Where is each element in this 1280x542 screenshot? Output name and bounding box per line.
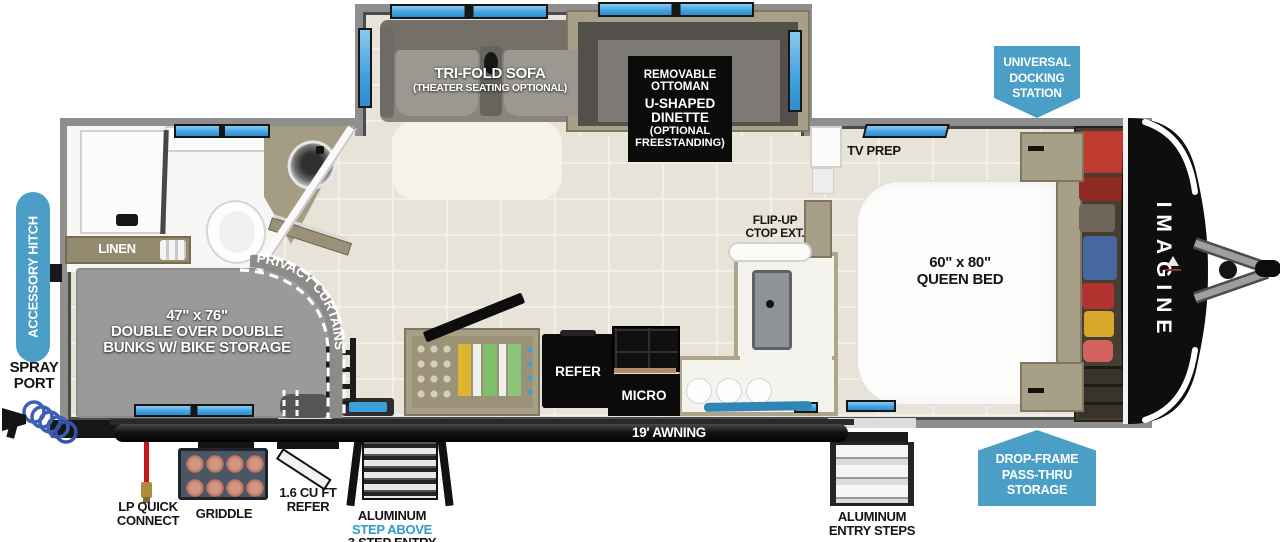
step-above-label: ALUMINUM STEP ABOVE 3 STEP ENTRY <box>338 509 446 542</box>
living-area-rug <box>392 120 562 200</box>
step-above-line3: 3 STEP ENTRY <box>338 536 446 542</box>
tongue-jack <box>1219 261 1237 279</box>
drop-frame-storage-badge: DROP-FRAME PASS-THRU STORAGE <box>978 430 1096 506</box>
linen-label: LINEN <box>72 242 162 256</box>
spray-nozzle-handle <box>6 423 17 439</box>
shower-fixture <box>116 214 138 226</box>
accessory-hitch-badge: ACCESSORY HITCH <box>16 192 50 362</box>
cabinet-top-handle <box>1028 146 1044 151</box>
awning-label: 19' AWNING <box>599 426 739 440</box>
accessory-hitch-label: ACCESSORY HITCH <box>26 216 41 338</box>
step-above-line1: ALUMINUM <box>338 509 446 523</box>
compact-refer-line1: 1.6 CU FT <box>268 486 348 500</box>
dinette-line3: (OPTIONAL FREESTANDING) <box>632 125 728 149</box>
bathroom-window <box>174 124 270 138</box>
linen-towels <box>160 240 186 260</box>
bunks-line2: DOUBLE OVER DOUBLE <box>92 324 302 340</box>
refer-label: REFER <box>555 364 601 379</box>
bedroom-cabinet-bottom <box>1020 362 1084 412</box>
compact-refer-line2: REFER <box>268 500 348 514</box>
pantry-speaker-dots <box>525 344 535 400</box>
bed-label: QUEEN BED <box>880 271 1040 288</box>
counter-plate-3 <box>746 378 772 404</box>
counter-plate-2 <box>716 378 742 404</box>
microwave: MICRO <box>608 374 680 416</box>
bed-size: 60" x 80" <box>880 254 1040 271</box>
bunk-ladder <box>326 338 356 406</box>
toilet-seat <box>219 211 255 253</box>
griddle-patties <box>184 452 264 498</box>
bath-faucet <box>316 146 324 154</box>
griddle-label: GRIDDLE <box>188 507 260 521</box>
hitch-coupler <box>1255 260 1280 277</box>
spray-nozzle <box>2 408 26 431</box>
flip-up-label: FLIP-UP CTOP EXT. <box>725 214 825 239</box>
entry-rug-center <box>349 402 387 412</box>
kitchen-sink <box>752 270 792 350</box>
counter-blue-mat <box>704 401 812 412</box>
sofa-armrest-left <box>380 26 394 118</box>
slide-window-right-pair <box>598 2 754 17</box>
slide-window-left-pair <box>390 4 548 19</box>
pantry-box-white2 <box>499 344 506 396</box>
pantry-box-white1 <box>473 344 481 396</box>
entry-steps-line2: ENTRY STEPS <box>824 524 920 538</box>
aluminum-entry-steps <box>830 442 914 506</box>
pantry-box-yellow <box>458 344 471 396</box>
bunks-label: 47" x 76" DOUBLE OVER DOUBLE BUNKS W/ BI… <box>92 308 302 356</box>
cap-seam <box>1123 118 1128 424</box>
triple-entry-steps <box>362 434 438 500</box>
step-above-line2: STEP ABOVE <box>338 523 446 537</box>
front-cap-assembly: IMAGINE <box>1095 98 1280 444</box>
lp-brass-fitting <box>141 482 152 498</box>
pantry-box-green1 <box>483 344 497 396</box>
pantry-cans <box>414 342 456 400</box>
dinette-line2: U-SHAPED DINETTE <box>632 97 728 125</box>
bunk-window <box>134 404 254 417</box>
queen-bed-label: 60" x 80" QUEEN BED <box>880 254 1040 288</box>
tv-prep-label: TV PREP <box>843 144 905 158</box>
pantry-box-green2 <box>508 344 521 396</box>
entry-steps-line1: ALUMINUM <box>824 510 920 524</box>
dinette-line1: REMOVABLE OTTOMAN <box>632 69 728 93</box>
cabinet-bottom-handle <box>1028 388 1044 393</box>
entry-steps-label: ALUMINUM ENTRY STEPS <box>824 510 920 537</box>
bunks-size: 47" x 76" <box>92 308 302 324</box>
bunks-line3: BUNKS W/ BIKE STORAGE <box>92 340 302 356</box>
tv-prep-cabinet <box>810 126 842 168</box>
sofa-label: TRI-FOLD SOFA <box>400 66 580 82</box>
tv-prep-shelf <box>812 168 834 194</box>
sofa-option-label: (THEATER SEATING OPTIONAL) <box>388 83 592 94</box>
refrigerator: REFER <box>542 334 614 408</box>
micro-label: MICRO <box>622 388 667 403</box>
dinette-label-box: REMOVABLE OTTOMAN U-SHAPED DINETTE (OPTI… <box>628 56 732 162</box>
slide-side-window-left <box>358 28 372 108</box>
tv-prep-window <box>862 124 949 138</box>
universal-docking-badge: UNIVERSAL DOCKING STATION <box>994 46 1080 118</box>
lp-quick-connect-label: LP QUICK CONNECT <box>102 500 194 527</box>
cooktop <box>612 326 680 372</box>
refer-handle <box>560 330 596 336</box>
compact-refer-label: 1.6 CU FT REFER <box>268 486 348 513</box>
bedroom-window <box>846 400 896 412</box>
floorplan-canvas: LINEN 47" x 76" DOUBLE OVER DOUBLE BUNKS… <box>0 0 1280 542</box>
entry-mat-dark <box>280 394 330 418</box>
slide-side-window-right <box>788 30 802 112</box>
bed-headboard <box>1056 174 1082 378</box>
grand-design-logo-bar <box>1165 269 1181 271</box>
counter-plate-1 <box>686 378 712 404</box>
lp-hose <box>144 438 149 484</box>
flip-up-countertop <box>728 242 812 262</box>
flip-up-line1: FLIP-UP <box>725 214 825 227</box>
cooktop-trim <box>614 368 676 373</box>
spray-port-label: SPRAY PORT <box>4 360 64 392</box>
flip-up-line2: CTOP EXT. <box>725 227 825 240</box>
kitchen-faucet <box>766 300 774 308</box>
bedroom-cabinet-top <box>1020 132 1084 182</box>
